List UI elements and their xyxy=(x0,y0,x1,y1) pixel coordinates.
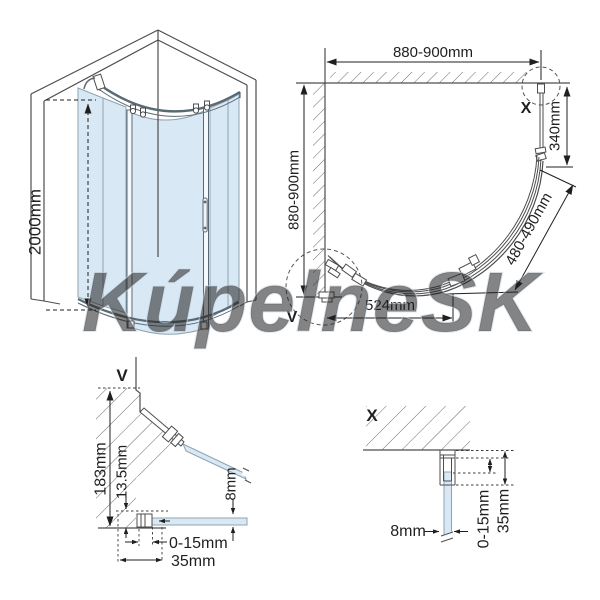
rail-end-curl xyxy=(84,78,95,89)
detail-v-35-label: 35mm xyxy=(171,553,215,570)
drawing-svg: 2000mm xyxy=(0,0,600,600)
plan-side-label: 340mm xyxy=(547,101,564,151)
detail-v-title: V xyxy=(116,366,128,385)
detail-x-0-15-label: 0-15mm xyxy=(476,490,493,549)
detail-x-wall-hatch xyxy=(366,406,470,450)
detail-v: 183mm 13.5mm 8mm 0-15mm 35mm V xyxy=(93,357,252,570)
shower-enclosure-technical-drawing: 2000mm xyxy=(0,0,600,600)
detail-v-8-label: 8mm xyxy=(223,467,240,500)
rail-wall-bracket xyxy=(93,74,105,90)
plan-top-wall-hatch xyxy=(330,72,528,83)
plan-right-glass xyxy=(535,84,546,161)
watermark-text: KúpelneSK xyxy=(82,255,543,349)
plan-marker-x: X xyxy=(521,100,532,117)
height-dim-label: 2000mm xyxy=(26,189,45,255)
plan-width-label: 880-900mm xyxy=(393,44,473,61)
detail-v-13-5-label: 13.5mm xyxy=(114,445,131,499)
detail-x-title: X xyxy=(366,406,378,425)
detail-v-0-15-label: 0-15mm xyxy=(169,535,228,552)
detail-x-glass xyxy=(444,472,452,538)
detail-v-183-label: 183mm xyxy=(93,442,110,495)
detail-x-35-label: 35mm xyxy=(496,489,513,533)
detail-x-8-label: 8mm xyxy=(390,523,426,540)
plan-depth-label: 880-900mm xyxy=(286,150,303,230)
detail-x: 0-15mm 35mm 8mm X xyxy=(363,406,514,548)
